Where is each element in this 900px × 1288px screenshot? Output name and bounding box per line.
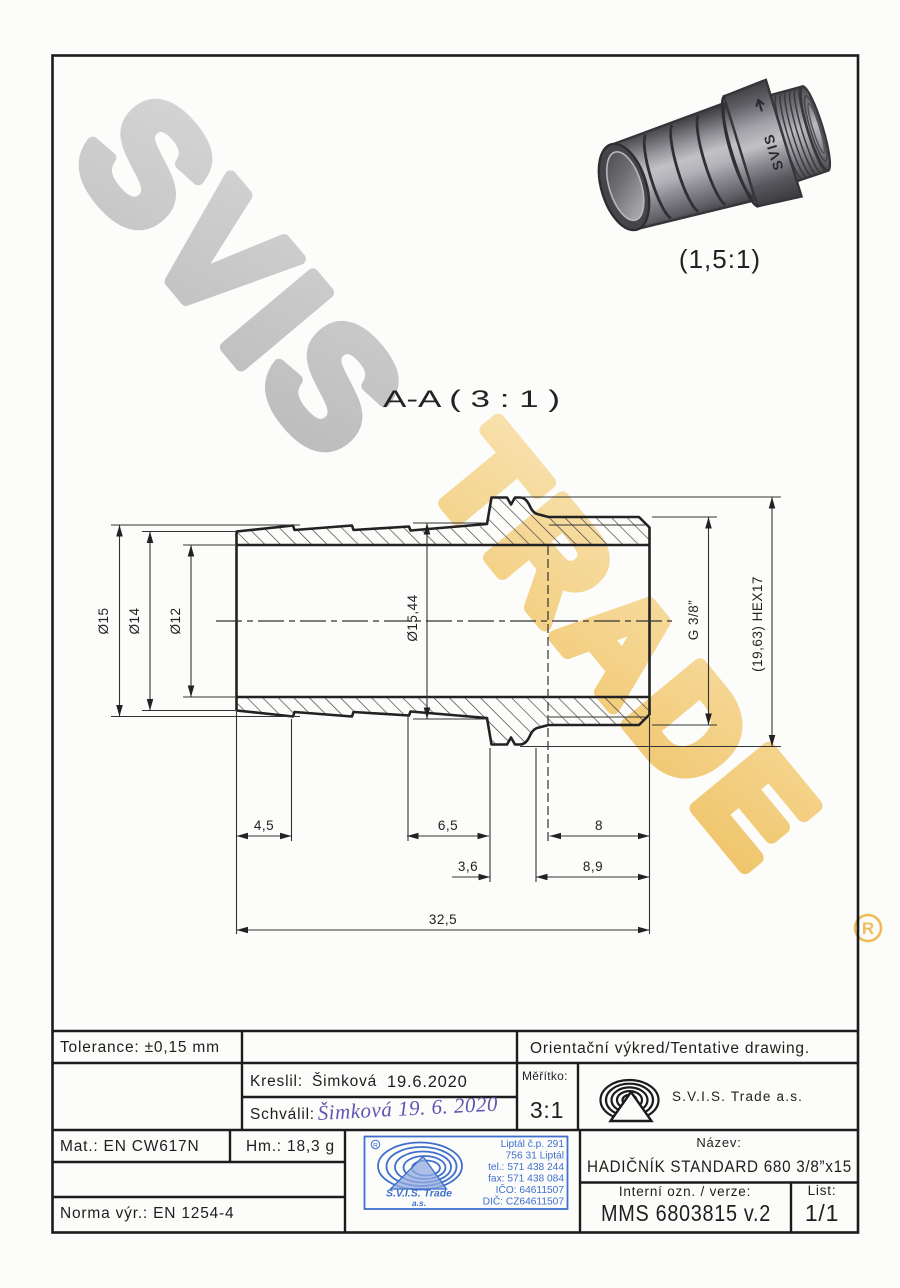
svg-text:DIČ: CZ64611507: DIČ: CZ64611507 [483, 1195, 565, 1208]
svg-text:Tolerance: ±0,15 mm: Tolerance: ±0,15 mm [60, 1039, 220, 1056]
svg-text:8: 8 [595, 818, 603, 833]
svg-text:S.V.I.S. Trade a.s.: S.V.I.S. Trade a.s. [672, 1089, 803, 1104]
svg-text:756 31 Liptál: 756 31 Liptál [506, 1151, 564, 1162]
svg-text:A-A ( 3 : 1 ): A-A ( 3 : 1 ) [383, 386, 560, 413]
svg-text:Hm.: 18,3 g: Hm.: 18,3 g [246, 1138, 335, 1155]
svg-text:Mat.: EN CW617N: Mat.: EN CW617N [60, 1138, 199, 1155]
svg-text:TRADE: TRADE [403, 401, 850, 898]
svg-text:(19,63) HEX17: (19,63) HEX17 [750, 576, 765, 672]
svg-text:IČO: 64611507: IČO: 64611507 [496, 1183, 565, 1196]
svg-text:Šimková: Šimková [312, 1073, 377, 1090]
svg-text:4,5: 4,5 [254, 818, 274, 833]
svg-text:Ø15: Ø15 [96, 607, 111, 634]
svg-text:R: R [862, 919, 874, 938]
svg-text:Název:: Název: [696, 1135, 741, 1150]
svg-text:Kreslil:: Kreslil: [250, 1073, 303, 1090]
svg-text:6,5: 6,5 [438, 818, 458, 833]
svg-text:1/1: 1/1 [805, 1200, 839, 1226]
svg-text:Měřítko:: Měřítko: [522, 1069, 568, 1083]
svg-text:SVIS: SVIS [40, 62, 443, 493]
svg-text:Norma výr.: EN 1254-4: Norma výr.: EN 1254-4 [60, 1205, 234, 1222]
svg-text:a.s.: a.s. [412, 1198, 426, 1208]
svg-text:32,5: 32,5 [429, 912, 457, 927]
svg-text:Ø14: Ø14 [127, 607, 142, 634]
svg-text:List:: List: [808, 1183, 837, 1198]
svg-text:3:1: 3:1 [530, 1097, 564, 1123]
svg-text:R: R [373, 1143, 378, 1150]
svg-text:Ø12: Ø12 [168, 607, 183, 634]
svg-text:tel.: 571 438 244: tel.: 571 438 244 [488, 1162, 564, 1173]
svg-text:8,9: 8,9 [583, 859, 603, 874]
svg-text:Schválil:: Schválil: [250, 1106, 315, 1123]
svg-text:Ø15,44: Ø15,44 [405, 594, 420, 641]
svg-text:Orientační výkred/Tentative dr: Orientační výkred/Tentative drawing. [530, 1040, 810, 1057]
svg-text:HADIČNÍK STANDARD 680 3/8”x15: HADIČNÍK STANDARD 680 3/8”x15 [587, 1157, 852, 1176]
svg-text:MMS 6803815 v.2: MMS 6803815 v.2 [601, 1200, 771, 1226]
svg-text:G 3/8”: G 3/8” [686, 600, 701, 641]
svg-text:3,6: 3,6 [458, 859, 478, 874]
svg-text:19.6.2020: 19.6.2020 [387, 1073, 468, 1091]
svg-text:(1,5:1): (1,5:1) [679, 244, 761, 274]
svg-text:Interní ozn. / verze:: Interní ozn. / verze: [619, 1184, 751, 1199]
svg-text:fax: 571 438 084: fax: 571 438 084 [488, 1174, 564, 1185]
svg-text:Liptál č.p. 291: Liptál č.p. 291 [501, 1139, 565, 1150]
